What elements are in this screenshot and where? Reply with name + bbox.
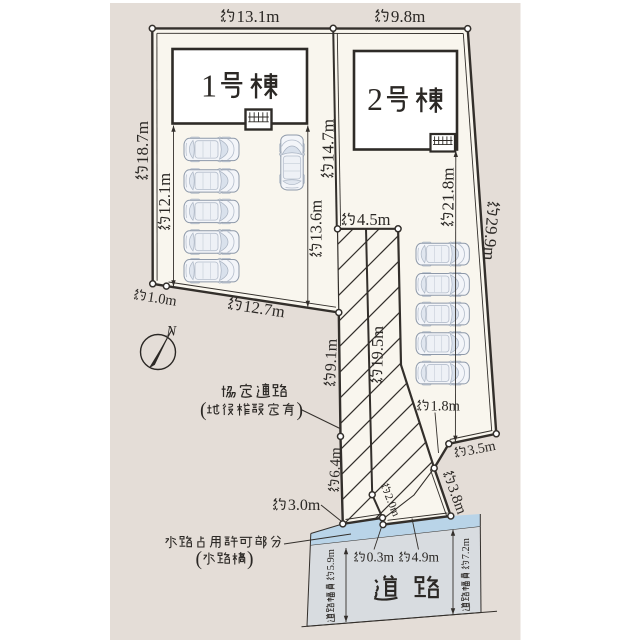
svg-text:4.5m: 4.5m [357, 210, 391, 229]
svg-text:7.2m: 7.2m [461, 538, 472, 559]
svg-text:1: 1 [201, 67, 217, 103]
svg-text:19.5m: 19.5m [367, 326, 387, 368]
svg-text:4.9m: 4.9m [412, 550, 440, 565]
svg-text:2: 2 [367, 82, 383, 117]
svg-text:3.0m: 3.0m [288, 497, 321, 514]
svg-text:12.1m: 12.1m [155, 173, 174, 215]
svg-text:): ) [297, 400, 304, 421]
svg-text:9.1m: 9.1m [323, 338, 341, 372]
svg-text:(: ( [196, 549, 203, 570]
svg-text:13.6m: 13.6m [307, 200, 326, 242]
svg-text:0.3m: 0.3m [367, 550, 395, 565]
svg-text:29.9m: 29.9m [480, 217, 502, 261]
svg-text:): ) [247, 549, 254, 570]
svg-text:6.4m: 6.4m [327, 447, 344, 478]
svg-text:N: N [166, 324, 178, 340]
svg-text:9.8m: 9.8m [391, 7, 425, 26]
svg-text:18.7m: 18.7m [133, 121, 152, 164]
svg-text:1.8m: 1.8m [431, 398, 461, 414]
svg-text:(: ( [200, 400, 207, 421]
svg-text:5.9m: 5.9m [326, 549, 337, 570]
svg-text:21.8m: 21.8m [438, 168, 457, 211]
svg-text:13.1m: 13.1m [237, 7, 280, 26]
svg-text:14.7m: 14.7m [318, 119, 337, 162]
